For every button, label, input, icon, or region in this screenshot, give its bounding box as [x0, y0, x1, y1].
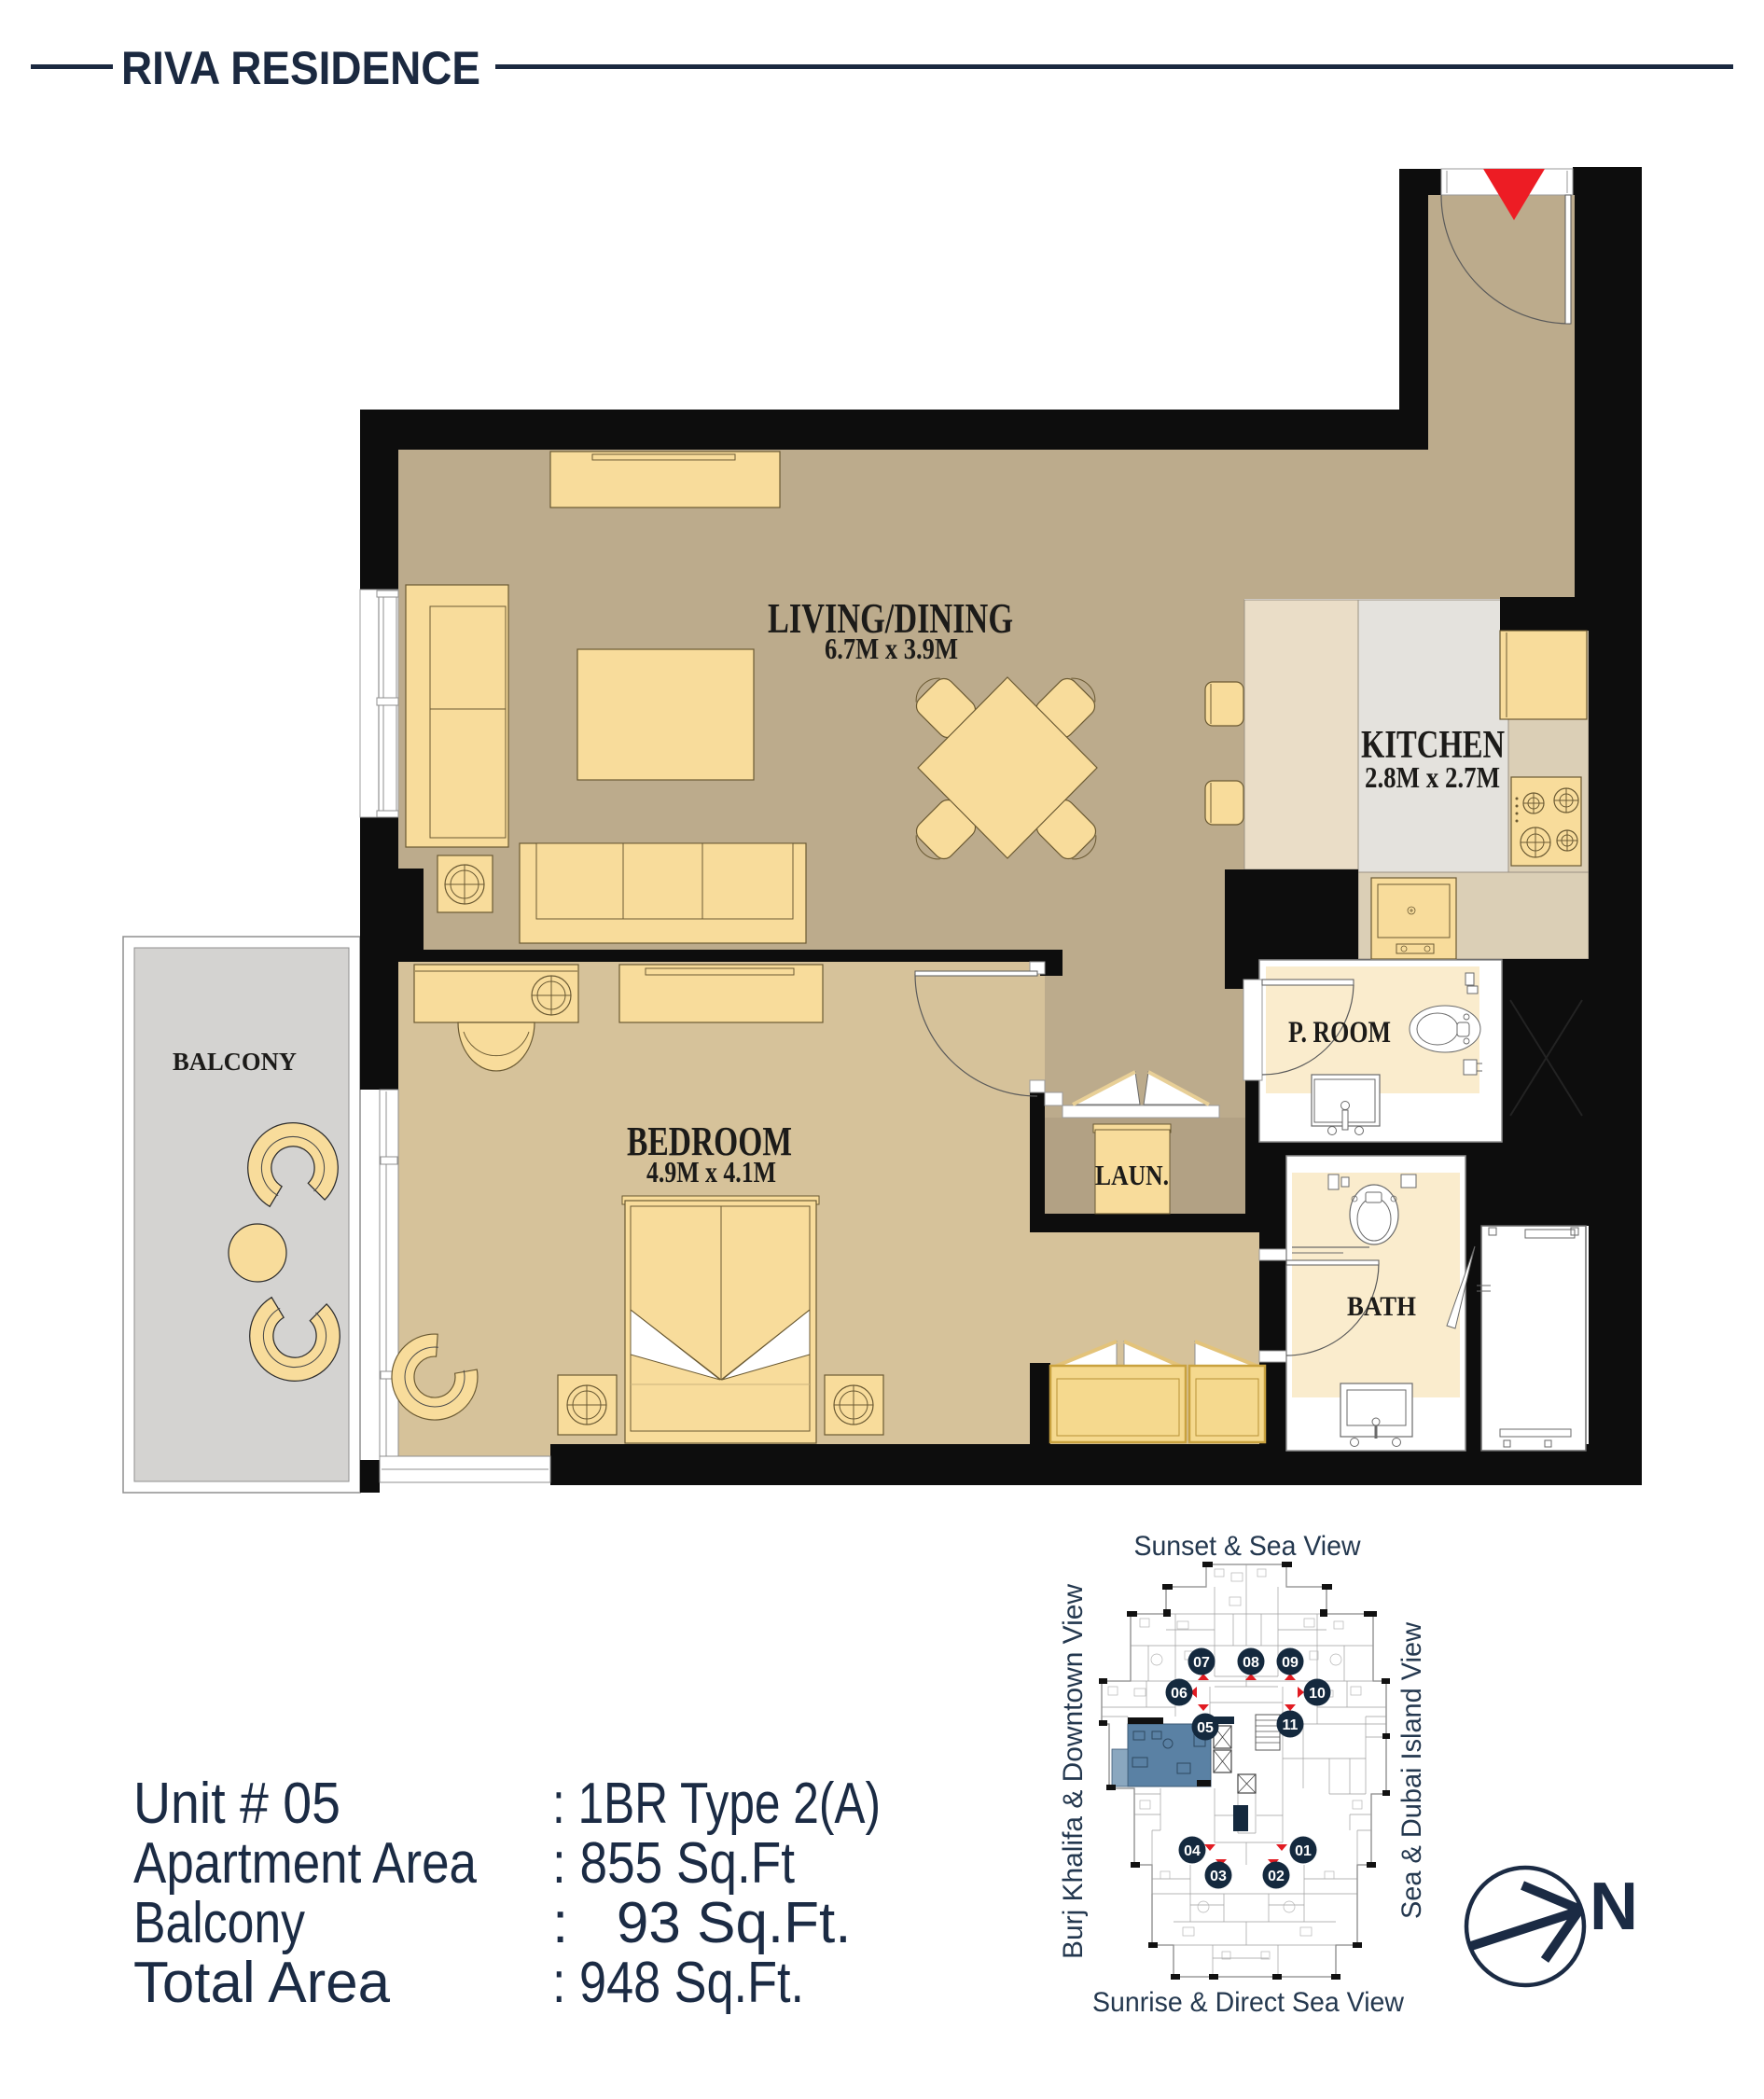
svg-text:: 855 Sq.Ft: : 855 Sq.Ft	[552, 1831, 795, 1896]
svg-text:BATH: BATH	[1347, 1291, 1416, 1322]
svg-text:: 948 Sq.Ft.: : 948 Sq.Ft.	[552, 1951, 804, 2015]
svg-text:05: 05	[1197, 1720, 1214, 1736]
svg-text:LAUN.: LAUN.	[1095, 1159, 1169, 1191]
svg-text:: 93 Sq.Ft.: : 93 Sq.Ft.	[552, 1891, 851, 1955]
svg-text:RIVA RESIDENCE: RIVA RESIDENCE	[121, 42, 480, 94]
svg-text:P. ROOM: P. ROOM	[1288, 1016, 1391, 1049]
svg-text:Sea & Dubai Island View: Sea & Dubai Island View	[1396, 1622, 1427, 1919]
svg-text:Sunrise & Direct Sea View: Sunrise & Direct Sea View	[1092, 1987, 1404, 2018]
svg-text:Apartment Area: Apartment Area	[133, 1831, 477, 1896]
svg-text:2.8M x 2.7M: 2.8M x 2.7M	[1365, 760, 1500, 794]
svg-text:BALCONY: BALCONY	[173, 1048, 297, 1076]
svg-text:02: 02	[1268, 1869, 1285, 1884]
svg-text:11: 11	[1283, 1717, 1299, 1733]
svg-text:08: 08	[1243, 1655, 1259, 1671]
svg-text:09: 09	[1282, 1655, 1299, 1671]
svg-text:6.7M x 3.9M: 6.7M x 3.9M	[825, 632, 958, 665]
svg-text:03: 03	[1210, 1869, 1227, 1884]
svg-text:: 1BR Type 2(A): : 1BR Type 2(A)	[552, 1772, 881, 1836]
svg-text:10: 10	[1309, 1686, 1326, 1702]
svg-text:Total Area: Total Area	[133, 1951, 391, 2015]
svg-text:Balcony: Balcony	[133, 1891, 305, 1955]
svg-text:N: N	[1590, 1870, 1638, 1944]
svg-text:Sunset & Sea View: Sunset & Sea View	[1134, 1531, 1361, 1562]
svg-text:01: 01	[1295, 1843, 1312, 1859]
svg-text:04: 04	[1184, 1843, 1201, 1859]
svg-text:07: 07	[1193, 1655, 1210, 1671]
svg-text:Burj Khalifa & Downtown View: Burj Khalifa & Downtown View	[1058, 1584, 1089, 1959]
svg-text:06: 06	[1171, 1686, 1188, 1702]
svg-text:Unit # 05: Unit # 05	[133, 1772, 340, 1836]
svg-text:4.9M x 4.1M: 4.9M x 4.1M	[646, 1155, 776, 1189]
